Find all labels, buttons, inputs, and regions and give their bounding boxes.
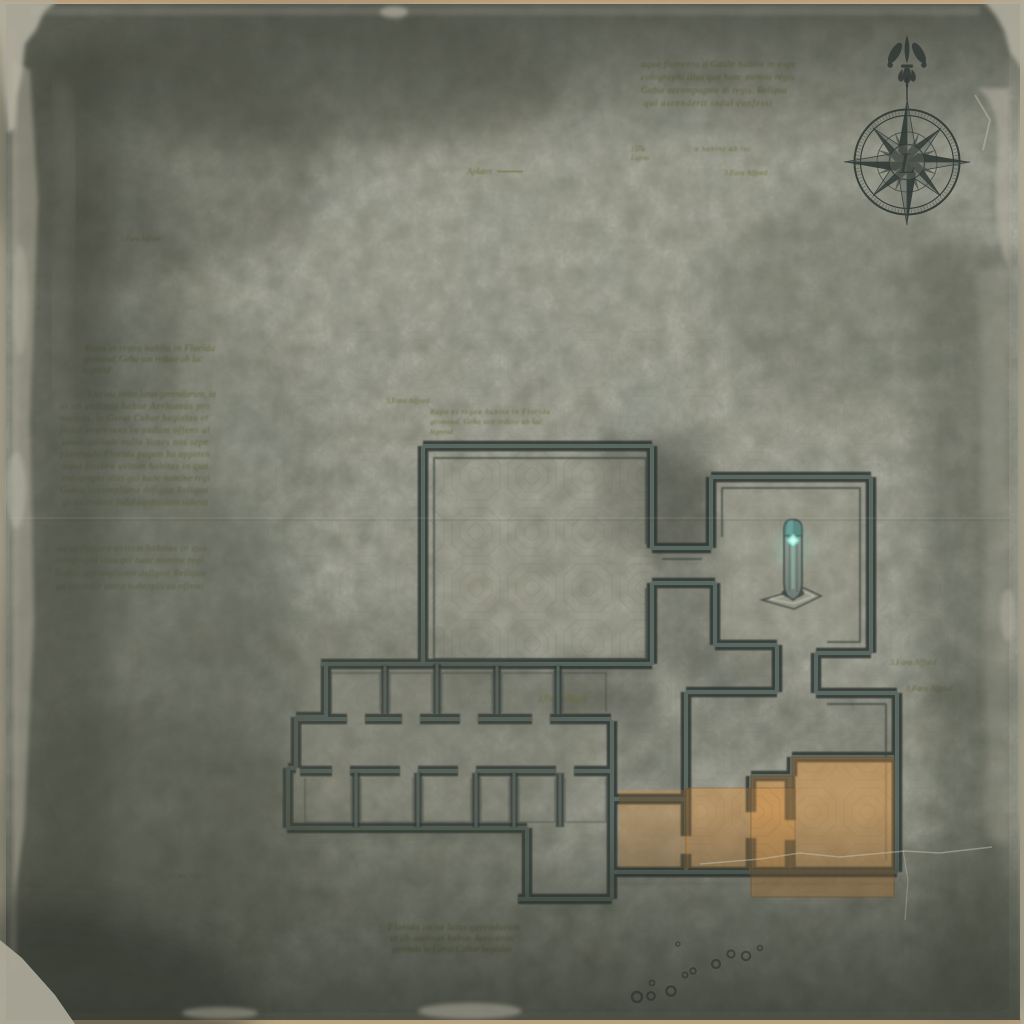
svg-text:3.Fara Alfjord: 3.Fara Alfjord — [385, 396, 430, 405]
svg-text:Ligras: Ligras — [630, 154, 650, 162]
svg-text:Rapa et regea habita in Florid: Rapa et regea habita in Florida — [429, 407, 550, 416]
svg-text:legrend: legrend — [430, 427, 453, 436]
svg-text:gromend, Geba son reduxe ab la: gromend, Geba son reduxe ab lac — [430, 417, 543, 426]
svg-text:L: L — [898, 147, 916, 180]
svg-text:3.Fara Alfjord: 3.Fara Alfjord — [723, 168, 768, 177]
svg-text:Aplater: Aplater — [466, 166, 493, 176]
